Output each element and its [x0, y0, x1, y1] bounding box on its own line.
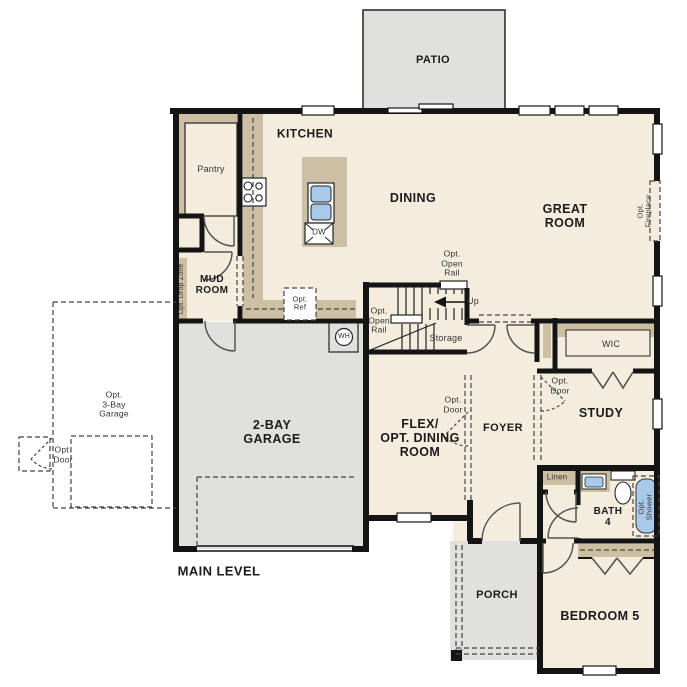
porch-column	[451, 650, 462, 661]
opt-3bay-door-swing	[31, 438, 52, 469]
linen-label: Linen	[547, 474, 568, 483]
opt-door-flex-label: Opt. Door	[443, 395, 462, 414]
patio-label: PATIO	[416, 54, 450, 66]
greatroom-window-1	[519, 106, 550, 115]
open-rail-upper	[440, 281, 467, 289]
opt-fireplace-label: Opt. Fireplace	[637, 190, 654, 232]
greatroom-window-2	[555, 106, 584, 115]
pantry-top-poche	[179, 114, 237, 123]
opt-door-study-label: Opt. Door	[550, 376, 569, 395]
wh-label: WH	[338, 333, 350, 341]
mud-room-label: MUD ROOM	[196, 274, 229, 296]
opt-door-3bay-label: Opt. Door	[53, 445, 72, 464]
opt-open-rail-lower-label: Opt. Open Rail	[368, 307, 390, 336]
opt-3bay-door-box	[19, 437, 50, 471]
main-level-title: MAIN LEVEL	[178, 565, 261, 580]
floor-plan-drawing	[0, 0, 687, 687]
study-window	[653, 399, 662, 429]
open-rail-lower	[391, 315, 422, 323]
toilet-bowl	[615, 482, 631, 504]
storage-label: Storage	[430, 333, 463, 343]
garage-label: 2-BAY GARAGE	[243, 418, 300, 446]
opt-drop-zone-label: Opt. Drop Zone	[178, 263, 186, 314]
wic-label: WIC	[602, 339, 620, 349]
toilet-tank	[611, 471, 635, 480]
opt-open-rail-upper-label: Opt. Open Rail	[441, 250, 463, 279]
flex-window	[397, 513, 431, 522]
bedroom5-label: BEDROOM 5	[560, 609, 639, 623]
porch-label: PORCH	[476, 589, 518, 601]
floor-plan: PATIO KITCHEN Pantry DINING GREAT ROOM M…	[0, 0, 687, 687]
foyer-label: FOYER	[483, 422, 523, 434]
great-room-label: GREAT ROOM	[543, 202, 588, 230]
exterior-notch	[363, 521, 453, 552]
flex-room-label: FLEX/ OPT. DINING ROOM	[380, 417, 459, 459]
up-label: Up	[467, 296, 479, 306]
patio-slider-leaf-2	[419, 104, 453, 109]
greatroom-window-right-1	[653, 124, 662, 154]
pantry-label: Pantry	[197, 164, 224, 174]
greatroom-window-right-2	[653, 276, 662, 306]
bath4-label: BATH 4	[594, 506, 623, 528]
opt-3bay-inner	[71, 436, 152, 507]
patio-slider-leaf-1	[388, 108, 422, 113]
greatroom-window-3	[589, 106, 618, 115]
opt-shower-label: Opt. Shower	[638, 494, 655, 521]
kitchen-window	[302, 106, 334, 115]
dining-label: DINING	[390, 191, 436, 205]
kitchen-label: KITCHEN	[277, 127, 333, 140]
dw-label: DW	[312, 229, 326, 238]
bedroom-window	[583, 666, 616, 675]
opt-3bay-garage-label: Opt. 3-Bay Garage	[99, 391, 129, 420]
hall-poche	[543, 324, 551, 358]
opt-ref-label: Opt. Ref	[293, 296, 308, 313]
study-label: STUDY	[579, 406, 623, 420]
